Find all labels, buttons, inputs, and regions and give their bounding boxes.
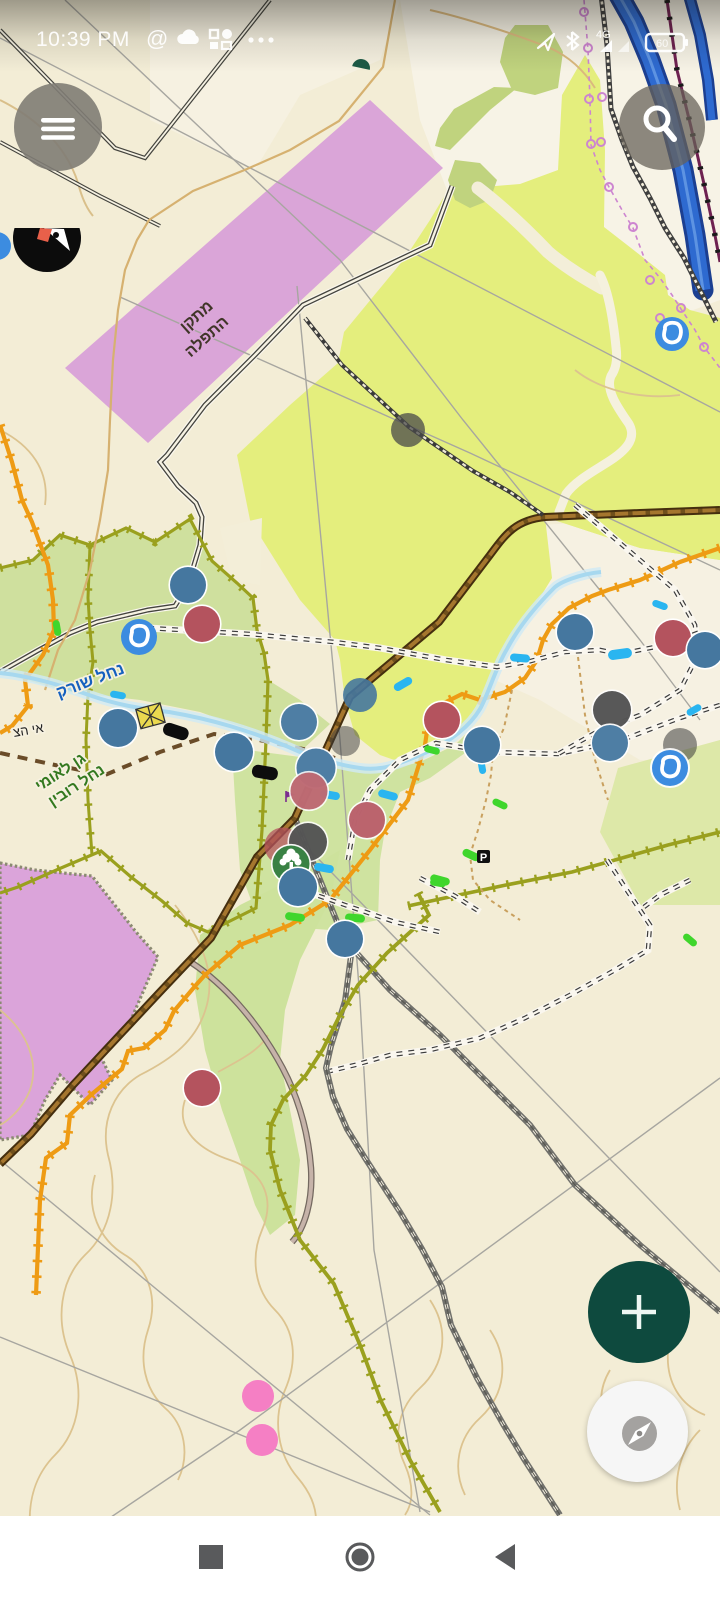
svg-text:60: 60 [656, 38, 668, 50]
svg-text:@: @ [146, 26, 168, 51]
svg-text:P: P [480, 852, 487, 864]
svg-text:4G: 4G [596, 29, 611, 41]
